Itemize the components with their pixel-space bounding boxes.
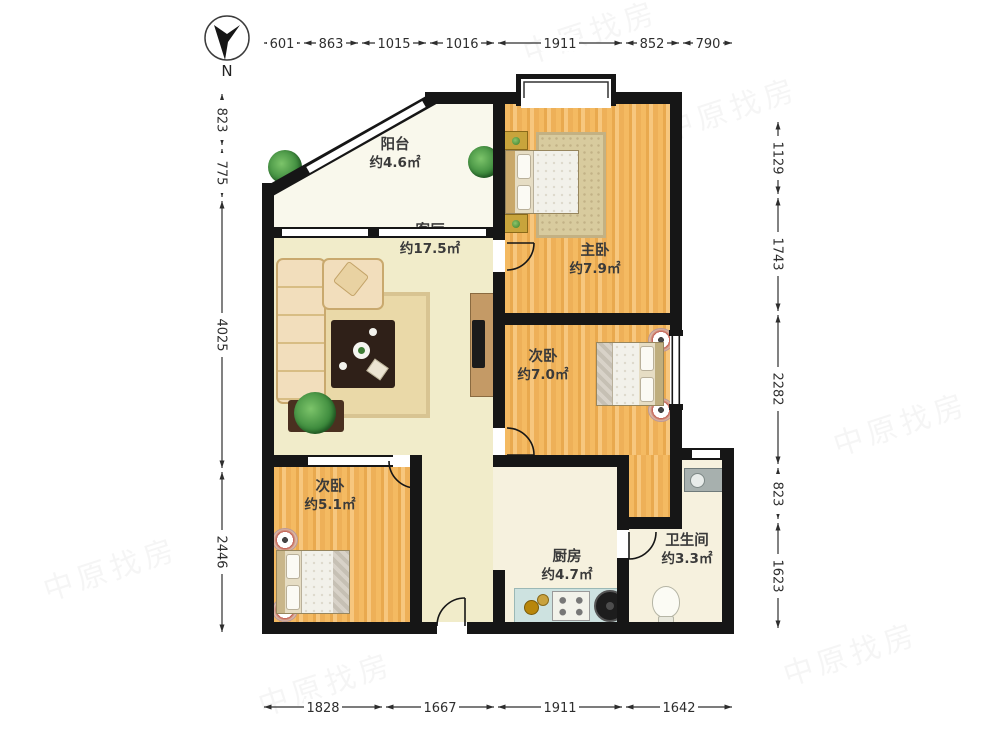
room-name: 厨房: [502, 548, 632, 567]
room-area: 约5.1㎡: [265, 497, 395, 515]
room-area: 约7.0㎡: [478, 367, 608, 385]
dim-label: 823: [770, 482, 785, 507]
watermark: 中原找房: [252, 639, 399, 724]
dim-label: 823: [214, 108, 229, 133]
tray: [366, 358, 389, 380]
dim-label: 1911: [543, 701, 576, 716]
label-balcony: 阳台 约4.6㎡: [330, 136, 460, 172]
dimension-left: 823 775 4025 2446: [214, 94, 231, 632]
room-name: 卫生间: [622, 532, 752, 551]
sofa: [276, 258, 326, 404]
master-bed-pillows: [515, 151, 533, 213]
dim-label: 1015: [377, 37, 410, 52]
dim-label: 2446: [214, 535, 229, 568]
master-nightstand-top: [504, 131, 528, 150]
compass: N: [205, 16, 249, 80]
bathroom-sink: [684, 468, 728, 492]
hallway-floor: [422, 455, 493, 622]
dim-label: 863: [319, 37, 344, 52]
bedroom3-bed-pillows: [285, 551, 301, 613]
pillow: [517, 154, 532, 180]
label-kitchen: 厨房 约4.7㎡: [502, 548, 632, 584]
dim-label: 1016: [445, 37, 478, 52]
sink-basin: [690, 473, 705, 488]
kitchen-stove: [552, 591, 590, 621]
bedroom3-bed-duvet: [301, 551, 333, 613]
watermark: 中原找房: [517, 0, 664, 73]
dim-label: 1911: [543, 37, 576, 52]
bathroom-window: [692, 450, 720, 458]
pillow: [286, 585, 299, 611]
toilet: [652, 586, 680, 618]
room-name: 主卧: [530, 242, 660, 261]
room-area: 约3.3㎡: [622, 551, 752, 569]
bedroom3-window: [308, 457, 393, 465]
watermark: 中原找房: [657, 64, 804, 149]
bedroom3-bed: [276, 550, 350, 614]
room-name: 客厅: [365, 222, 495, 241]
plate: [353, 342, 370, 359]
dimension-right: 1129 1743 2282 823 1623: [770, 122, 787, 628]
compass-north-label: N: [221, 62, 232, 80]
toilet-base: [658, 616, 674, 626]
room-name: 次卧: [265, 478, 395, 497]
bedroom3-bed-headboard: [277, 551, 285, 613]
label-master: 主卧 约7.9㎡: [530, 242, 660, 278]
watermark: 中原找房: [827, 379, 974, 464]
dim-label: 601: [270, 37, 295, 52]
dim-label: 1129: [770, 141, 785, 174]
dimension-bottom: 1828 1667 1911 1642: [264, 699, 732, 716]
kitchen-utensil: [537, 594, 549, 606]
dim-label: 775: [214, 161, 229, 186]
watermark: 中原找房: [777, 609, 924, 694]
master-bed: [505, 150, 579, 214]
balcony-plant-left: [268, 150, 302, 184]
master-bed-headboard: [506, 151, 515, 213]
dimension-top: 601 863 1015 1016 1911 852 790: [264, 35, 732, 52]
label-living: 客厅 约17.5㎡: [365, 222, 495, 258]
room-area: 约4.6㎡: [330, 155, 460, 173]
room-area: 约17.5㎡: [365, 241, 495, 259]
dim-label: 4025: [214, 318, 229, 351]
dim-label: 852: [640, 37, 665, 52]
label-bedroom3: 次卧 约5.1㎡: [265, 478, 395, 514]
cup: [369, 328, 377, 336]
coffee-table: [331, 320, 395, 388]
dim-label: 1623: [770, 559, 785, 592]
bedroom2-bed-duvet: [612, 343, 639, 405]
cup: [339, 362, 347, 370]
label-bathroom: 卫生间 约3.3㎡: [622, 532, 752, 568]
balcony-plant-right: [468, 146, 500, 178]
dim-label: 1743: [770, 237, 785, 270]
room-name: 阳台: [330, 136, 460, 155]
bedroom2-bed-headboard: [655, 343, 663, 405]
pillow: [286, 554, 299, 580]
master-bay-window: [516, 74, 616, 108]
pillow: [640, 377, 653, 403]
dim-label: 790: [696, 37, 721, 52]
floor-plan-canvas: 中原找房 中原找房 中原找房 中原找房 中原找房 中原找房: [0, 0, 1000, 750]
bedroom3-lamp-top: [272, 528, 298, 552]
watermark: 中原找房: [37, 524, 184, 609]
dim-label: 1642: [662, 701, 695, 716]
label-bedroom2: 次卧 约7.0㎡: [478, 348, 608, 384]
room-area: 约4.7㎡: [502, 567, 632, 585]
dim-label: 1667: [423, 701, 456, 716]
room-area: 约7.9㎡: [530, 261, 660, 279]
master-nightstand-bottom: [504, 214, 528, 233]
kitchen-wok: [594, 590, 626, 622]
master-bed-duvet: [533, 151, 578, 213]
room-bedroom2-floor-extension: [629, 455, 670, 517]
dim-label: 1828: [306, 701, 339, 716]
dim-label: 2282: [770, 372, 785, 405]
bedroom2-bed-pillows: [639, 343, 655, 405]
bedroom3-bed-blanket: [333, 551, 349, 613]
compass-circle: [205, 16, 249, 60]
north-arrow-icon: [214, 25, 240, 60]
pillow: [517, 185, 532, 211]
living-plant: [294, 392, 336, 434]
room-name: 次卧: [478, 348, 608, 367]
pillow: [640, 346, 653, 372]
